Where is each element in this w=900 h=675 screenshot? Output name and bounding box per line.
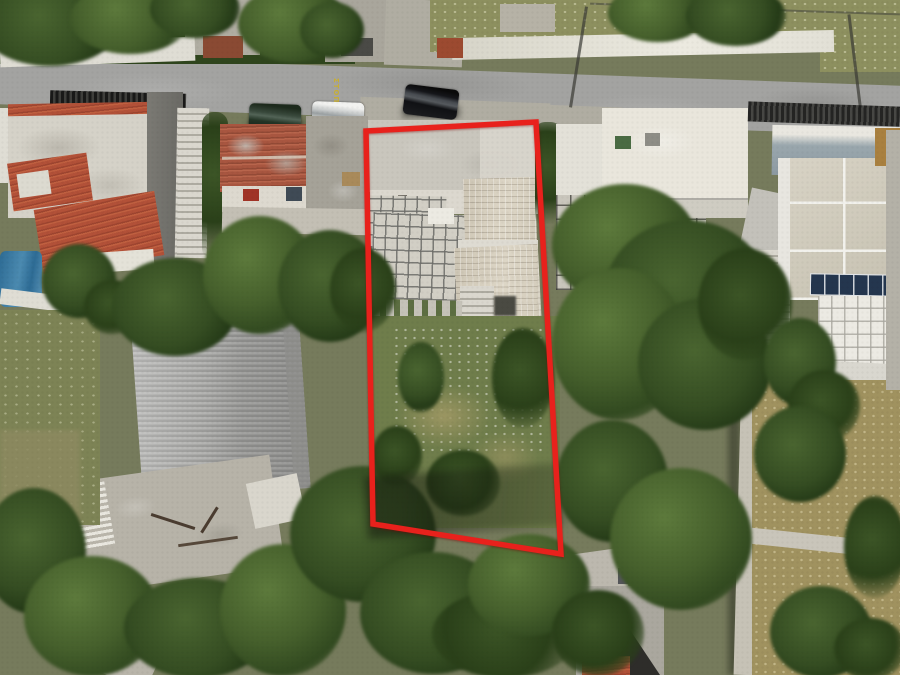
property-boundary-overlay: [0, 0, 900, 675]
property-boundary-outline: [366, 122, 561, 554]
aerial-photo-canvas: ΣΤΟΠ: [0, 0, 900, 675]
